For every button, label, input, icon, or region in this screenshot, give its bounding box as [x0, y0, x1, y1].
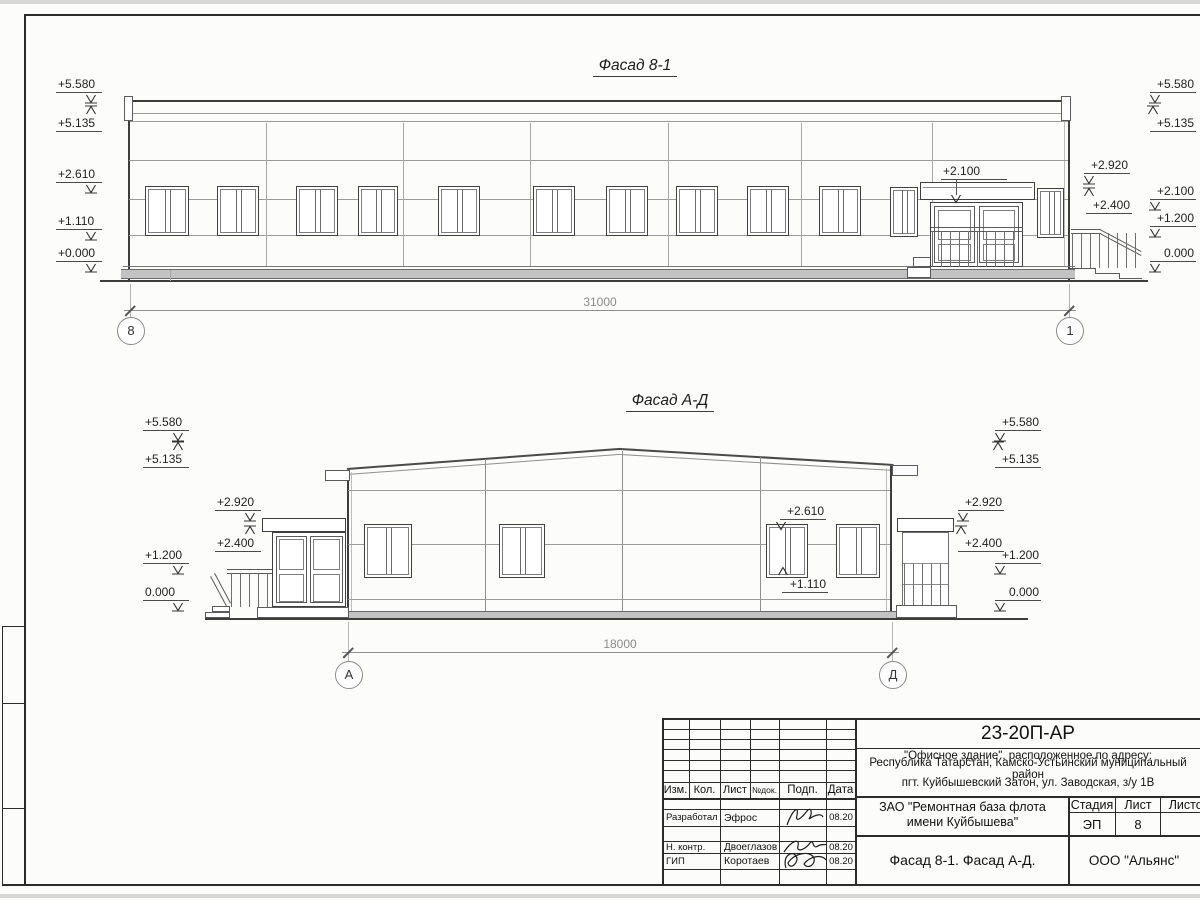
entrance-step: [913, 257, 931, 267]
window: [145, 186, 189, 236]
sheets-label: Листов: [1161, 797, 1200, 812]
vestibule-canopy: [262, 518, 346, 532]
level-mark: +5.580: [143, 415, 189, 431]
level-arrow-up-icon: [1082, 187, 1096, 198]
dimension-line: [124, 310, 1076, 311]
canopy-line: [923, 187, 1032, 188]
level-arrow-up-icon: [84, 105, 98, 116]
window: [499, 524, 545, 578]
col-list: Лист: [720, 782, 750, 798]
tb-line: [662, 760, 855, 761]
level-mark: +2.400: [1086, 198, 1132, 214]
axis-bubble-1: 1: [1056, 317, 1084, 345]
level-mark: +2.920: [215, 495, 261, 511]
company-name: ООО "Альянс": [1070, 837, 1198, 883]
level-mark: +5.135: [143, 452, 189, 468]
col-podp: Подп.: [779, 782, 826, 798]
date-gip: 08.20: [827, 854, 855, 868]
window: [676, 186, 718, 236]
frame-top: [24, 14, 1200, 16]
level-arrow-down-icon: [993, 601, 1007, 612]
level-arrow-up-icon: [776, 566, 790, 577]
panel-joint: [403, 123, 404, 266]
date-razrabotal: 08.20: [827, 810, 855, 825]
leader-line: [956, 179, 957, 195]
panel-joint: [668, 123, 669, 266]
panel-joint: [485, 459, 486, 612]
glazing: [313, 539, 340, 570]
eave-cap-right: [892, 465, 918, 476]
level-arrow-down-icon: [243, 511, 257, 522]
margin-cell-line: [2, 626, 24, 627]
col-ndok: №док.: [750, 782, 779, 798]
level-arrow-up-icon: [1146, 105, 1160, 116]
level-arrow-down-icon: [84, 183, 98, 194]
margin-cell-line: [2, 808, 24, 809]
wall-edge-left: [347, 470, 349, 612]
level-mark: +0.000: [56, 246, 102, 262]
level-mark: 0.000: [1150, 246, 1196, 262]
entrance-canopy: [920, 182, 1035, 200]
porch-balusters: [904, 564, 948, 605]
lower-panel: [279, 574, 304, 602]
facade-band: [348, 490, 890, 491]
porch-rail: [931, 227, 1023, 228]
name-nkontr: Двоеглазов: [721, 841, 778, 853]
ground-line: [100, 280, 1148, 282]
dimension-line: [342, 652, 899, 653]
overall-dimension: 18000: [580, 637, 660, 651]
level-mark: +2.100: [1150, 184, 1196, 200]
stair-handrail: [227, 569, 272, 570]
tb-line: [662, 739, 855, 740]
level-arrow-down-icon: [171, 601, 185, 612]
porch-canopy: [897, 518, 954, 532]
role-nkontr: Н. контр.: [663, 841, 719, 853]
glazing: [279, 539, 304, 570]
window: [890, 187, 918, 237]
ground-tick: [170, 270, 171, 281]
window-head-mark: +2.610: [780, 504, 826, 520]
facade-band: [129, 235, 1068, 236]
parapet-line: [129, 121, 1069, 122]
extension-line: [130, 284, 131, 318]
frame-bottom: [2, 884, 1200, 886]
level-mark: +5.135: [995, 452, 1041, 468]
address-line-2: Республика Татарстан, Камско-Устьинский …: [852, 762, 1200, 776]
extension-line: [1069, 284, 1070, 318]
signature-razrabotal-icon: [783, 803, 825, 831]
panel-joint: [801, 123, 802, 266]
level-arrow-down-icon: [949, 194, 963, 205]
eave-cap-left: [325, 470, 350, 481]
tb-line: [662, 826, 855, 827]
vestibule-base: [257, 607, 349, 618]
wall-inner-line: [1064, 122, 1065, 266]
wall-edge-right: [1068, 100, 1070, 280]
facade-band: [348, 544, 890, 545]
level-mark: +5.580: [1150, 77, 1196, 93]
axis-bubble-8: 8: [117, 317, 145, 345]
roof-line: [347, 447, 620, 469]
parapet-top: [128, 100, 1070, 102]
level-arrow-down-icon: [774, 520, 788, 531]
window: [364, 524, 412, 578]
window: [836, 524, 880, 578]
level-mark: +1.200: [995, 548, 1041, 564]
entrance-step: [907, 267, 931, 278]
parapet-line: [129, 113, 1069, 114]
axis-bubble-d: Д: [879, 661, 907, 689]
scan-edge-bottom: [0, 894, 1200, 898]
frame-left: [24, 14, 26, 885]
facade-band: [348, 599, 890, 600]
role-razrabotal: Разработал: [663, 809, 719, 826]
tb-line: [662, 770, 855, 771]
date-nkontr: 08.20: [827, 841, 855, 853]
sheet-number: 8: [1116, 813, 1160, 835]
window: [296, 186, 338, 236]
level-arrow-down-icon: [84, 230, 98, 241]
wall-inner-line: [351, 472, 352, 612]
level-arrow-down-icon: [171, 564, 185, 575]
window: [533, 186, 575, 236]
panel-joint: [760, 457, 761, 612]
level-arrow-up-icon: [243, 525, 257, 536]
level-arrow-up-icon: [954, 525, 968, 536]
level-arrow-down-icon: [1148, 200, 1162, 211]
sheet-title: Фасад 8-1. Фасад А-Д.: [857, 837, 1068, 883]
scan-edge-top: [0, 0, 1200, 4]
level-arrow-down-icon: [993, 564, 1007, 575]
tb-line: [662, 749, 855, 750]
level-mark: +2.920: [1084, 158, 1130, 174]
canopy-level-mark: +2.100: [941, 164, 1007, 180]
level-value: +2.100: [941, 164, 1007, 180]
window: [438, 186, 480, 236]
level-arrow-down-icon: [84, 93, 98, 104]
window: [217, 186, 259, 236]
level-mark: +2.920: [958, 495, 1004, 511]
stair-step: [1119, 278, 1142, 279]
stair-balusters: [231, 573, 273, 607]
level-mark: +2.610: [56, 167, 102, 183]
margin-column-edge: [2, 626, 3, 885]
signature-gip-icon: [780, 848, 828, 874]
panel-joint: [266, 123, 267, 266]
panel-joint: [622, 451, 623, 612]
client-line-2: имени Куйбышева": [857, 814, 1068, 830]
level-arrow-down-icon: [1082, 174, 1096, 185]
parapet-end-right: [1061, 96, 1071, 121]
panel-joint: [530, 123, 531, 266]
tb-line: [662, 798, 855, 800]
window: [358, 186, 398, 236]
level-mark: +1.200: [143, 548, 189, 564]
level-mark: +5.580: [995, 415, 1041, 431]
col-kol: Кол.: [689, 782, 720, 798]
name-razrabotal: Эфрос: [721, 809, 778, 826]
role-gip: ГИП: [663, 853, 719, 869]
col-data: Дата: [826, 782, 855, 798]
address-line-3: пгт. Куйбышевский Затон, ул. Заводская, …: [852, 776, 1200, 790]
level-arrow-down-icon: [956, 511, 970, 522]
window: [1037, 188, 1064, 238]
level-arrow-down-icon: [84, 262, 98, 273]
facade-a-d-title: Фасад А-Д: [590, 392, 750, 410]
level-mark: +5.135: [1150, 116, 1196, 132]
axis-bubble-a: А: [335, 661, 363, 689]
level-arrow-down-icon: [1148, 227, 1162, 238]
plinth-band: [121, 269, 1075, 279]
level-mark: +2.400: [215, 536, 261, 552]
level-arrow-down-icon: [1148, 93, 1162, 104]
wall-edge-left: [128, 100, 130, 280]
stair-handrail: [1071, 229, 1101, 230]
facade-8-1-title: Фасад 8-1: [555, 57, 715, 75]
window: [747, 186, 789, 236]
sheet-label: Лист: [1116, 797, 1160, 812]
level-mark: +5.135: [56, 116, 102, 132]
col-izm: Изм.: [662, 782, 689, 798]
level-mark: +1.200: [1150, 211, 1196, 227]
parapet-end-left: [124, 96, 133, 121]
window-sill-mark: +1.110: [782, 577, 828, 593]
wall-edge-right: [890, 466, 892, 612]
porch-balusters: [932, 231, 1022, 267]
level-mark: 0.000: [995, 585, 1041, 601]
lower-panel: [313, 574, 340, 602]
window: [819, 186, 861, 236]
level-arrow-up-icon: [171, 441, 185, 452]
porch-base: [896, 605, 957, 618]
document-code: 23-20П-АР: [856, 719, 1200, 748]
stage-label: Стадия: [1069, 797, 1115, 812]
level-mark: +5.580: [56, 77, 102, 93]
stair-balusters: [1072, 233, 1140, 268]
level-mark: 0.000: [143, 585, 189, 601]
architectural-drawing-sheet: Фасад 8-1: [0, 0, 1200, 900]
ground-line: [205, 618, 1028, 620]
window: [606, 186, 648, 236]
level-mark: +1.110: [56, 214, 102, 230]
stage-value: ЭП: [1069, 813, 1115, 835]
stair-step: [1095, 273, 1119, 274]
name-gip: Коротаев: [721, 853, 778, 869]
overall-dimension: 31000: [560, 295, 640, 309]
client-line-1: ЗАО "Ремонтная база флота: [857, 799, 1068, 815]
facade-band: [129, 160, 1068, 161]
level-arrow-up-icon: [991, 441, 1005, 452]
level-arrow-down-icon: [1148, 262, 1162, 273]
margin-cell-line: [2, 703, 24, 704]
tb-line: [662, 729, 855, 730]
